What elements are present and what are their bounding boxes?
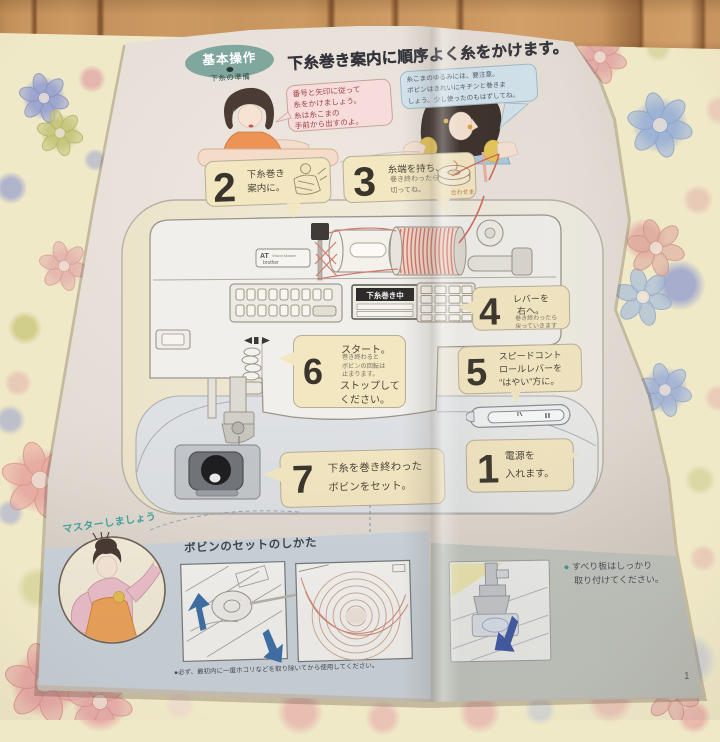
svg-text:下糸巻き中: 下糸巻き中 [366, 290, 404, 300]
svg-text:brother: brother [263, 260, 279, 266]
svg-text:合わせます: 合わせます [450, 188, 474, 197]
svg-text:Vision Master: Vision Master [272, 253, 297, 258]
svg-text:AT: AT [260, 253, 270, 260]
